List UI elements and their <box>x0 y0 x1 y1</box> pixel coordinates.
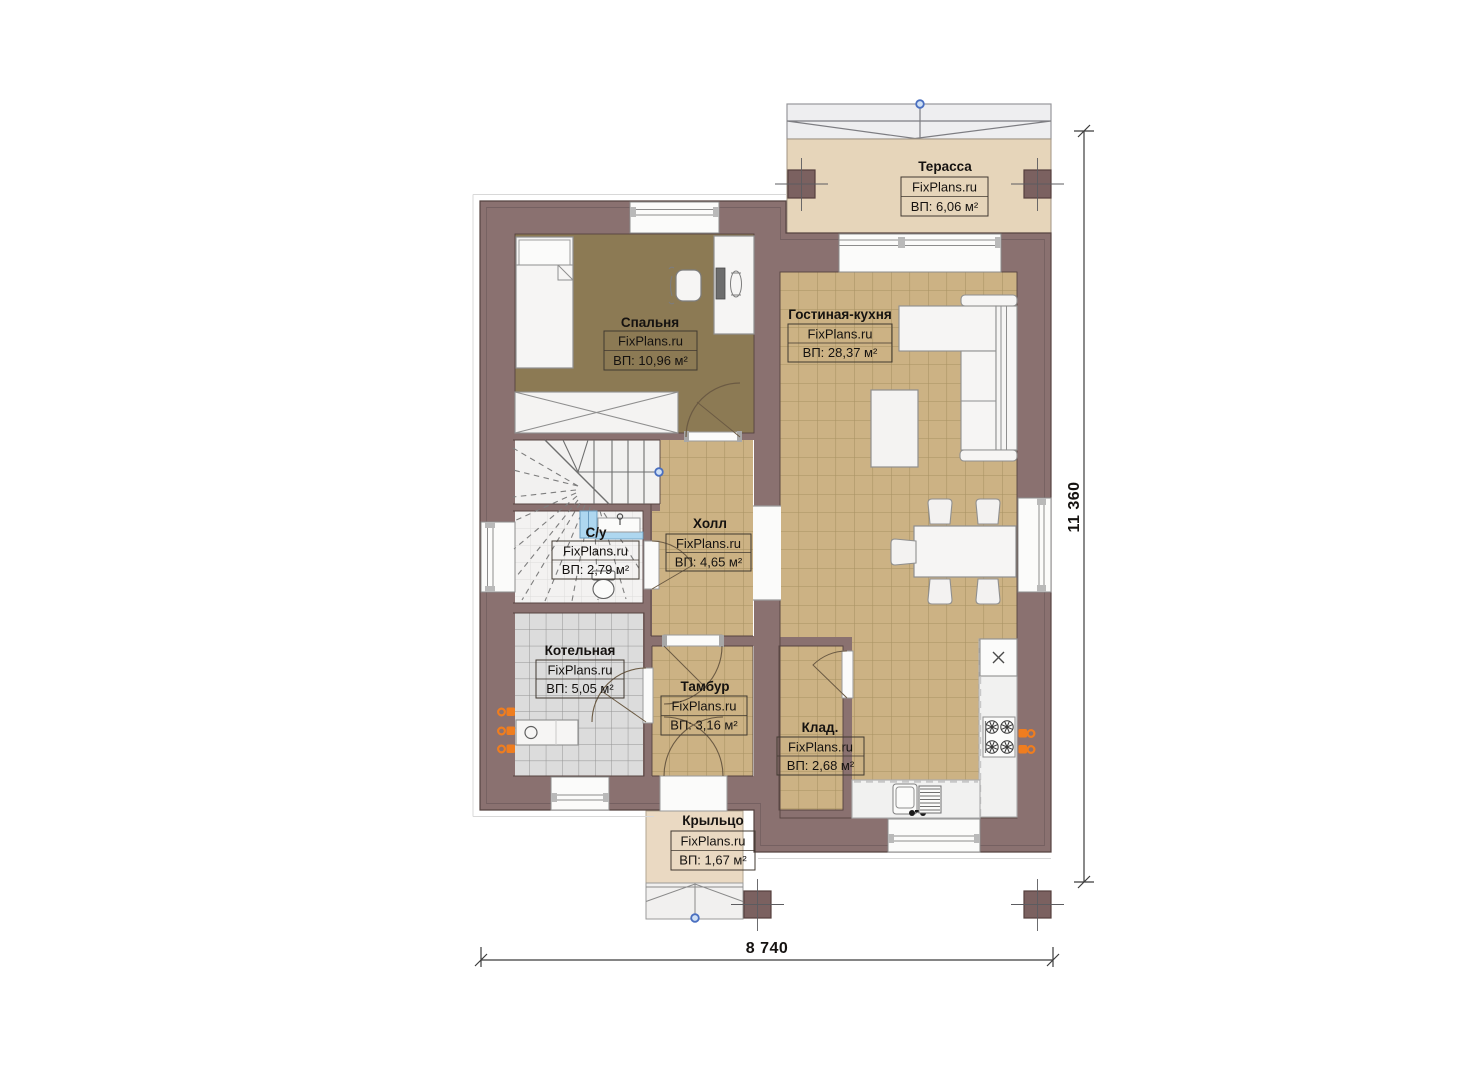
svg-text:ВП: 2,79 м²: ВП: 2,79 м² <box>562 562 630 577</box>
svg-text:ВП: 5,05 м²: ВП: 5,05 м² <box>546 681 614 696</box>
svg-text:FixPlans.ru: FixPlans.ru <box>788 740 853 755</box>
svg-text:Спальня: Спальня <box>621 315 679 330</box>
svg-text:С/у: С/у <box>585 525 607 540</box>
svg-text:Тамбур: Тамбур <box>681 679 730 694</box>
svg-text:Холл: Холл <box>693 516 727 531</box>
svg-text:11 360: 11 360 <box>1066 481 1083 532</box>
svg-text:ВП: 1,67 м²: ВП: 1,67 м² <box>679 853 747 868</box>
svg-text:ВП: 10,96 м²: ВП: 10,96 м² <box>613 353 688 368</box>
svg-text:FixPlans.ru: FixPlans.ru <box>807 327 872 342</box>
svg-text:Гостиная-кухня: Гостиная-кухня <box>788 307 891 322</box>
svg-text:FixPlans.ru: FixPlans.ru <box>563 544 628 559</box>
svg-text:Котельная: Котельная <box>545 643 616 658</box>
svg-text:ВП: 28,37 м²: ВП: 28,37 м² <box>803 345 878 360</box>
svg-text:FixPlans.ru: FixPlans.ru <box>671 699 736 714</box>
svg-text:ВП: 4,65 м²: ВП: 4,65 м² <box>675 555 743 570</box>
svg-text:FixPlans.ru: FixPlans.ru <box>547 663 612 678</box>
svg-text:ВП: 2,68 м²: ВП: 2,68 м² <box>787 758 855 773</box>
svg-text:Клад.: Клад. <box>802 720 839 735</box>
svg-text:Крыльцо: Крыльцо <box>682 813 743 828</box>
svg-text:FixPlans.ru: FixPlans.ru <box>912 180 977 195</box>
svg-text:FixPlans.ru: FixPlans.ru <box>618 334 683 349</box>
svg-text:FixPlans.ru: FixPlans.ru <box>680 834 745 849</box>
svg-text:ВП: 3,16 м²: ВП: 3,16 м² <box>670 718 738 733</box>
svg-text:Терасса: Терасса <box>918 159 972 174</box>
svg-text:8 740: 8 740 <box>746 940 789 957</box>
svg-text:FixPlans.ru: FixPlans.ru <box>676 536 741 551</box>
svg-text:ВП: 6,06 м²: ВП: 6,06 м² <box>911 199 979 214</box>
